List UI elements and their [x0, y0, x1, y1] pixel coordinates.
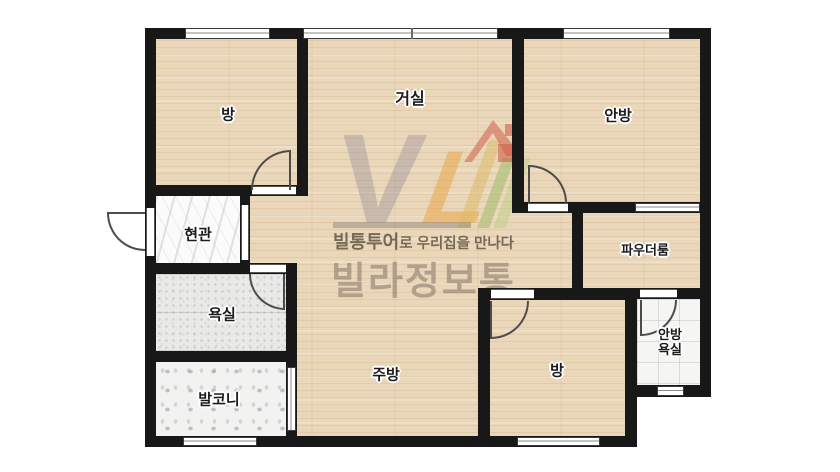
window-masterbedroom-powder [635, 203, 700, 212]
room-label-master-bathroom: 안방 욕실 [658, 328, 682, 358]
room-label-bedroom2: 방 [550, 362, 564, 379]
room-label-master-bathroom-line2: 욕실 [658, 342, 682, 357]
bedroom1-door-leaf [289, 150, 291, 190]
entrance-passage-opening [241, 205, 249, 260]
front-door-leaf [107, 212, 145, 214]
bathroom-door-opening [250, 264, 286, 273]
window-balcony-kitchen [287, 367, 296, 431]
front-door-arc [107, 213, 145, 251]
wall-living-masterbedroom [512, 28, 524, 213]
room-label-living: 거실 [395, 91, 424, 109]
window-top-masterbedroom [563, 28, 670, 39]
room-label-bedroom1: 방 [221, 106, 235, 123]
room-label-entrance: 현관 [184, 226, 212, 243]
window-top-living [303, 28, 498, 39]
window-top-bedroom1 [185, 28, 270, 39]
room-label-master-bathroom-line1: 안방 [658, 327, 682, 342]
wall-balcony-top [145, 351, 297, 362]
bathroom-door-leaf [283, 274, 285, 310]
room-label-kitchen: 주방 [372, 366, 400, 383]
window-bottom-balcony [183, 437, 257, 446]
wall-bathroom-right [286, 263, 297, 362]
wall-powderroom-left [572, 202, 583, 299]
window-bottom-bedroom2 [517, 437, 600, 446]
wall-bedroom2-left [478, 288, 490, 447]
wall-bedroom2-right [625, 288, 637, 447]
masterbathroom-door-leaf [640, 300, 642, 336]
bedroom2-door-leaf [490, 301, 492, 339]
room-label-master-bedroom: 안방 [604, 107, 632, 124]
room-label-powder-room: 파우더룸 [621, 244, 669, 259]
front-door-opening [146, 208, 155, 256]
masterbedroom-door-opening [528, 203, 568, 212]
masterbathroom-door-opening [640, 289, 677, 298]
masterbedroom-door-leaf [528, 165, 530, 203]
outside-notch [637, 397, 711, 447]
window-masterbathroom [657, 386, 684, 396]
window-divider [411, 28, 413, 39]
room-label-bathroom: 욕실 [208, 306, 236, 323]
bedroom2-door-opening [491, 289, 534, 299]
floor-plan: V L 빌통투어로 우리집을 만나다 빌라정보통 [0, 0, 840, 472]
room-label-balcony: 발코니 [198, 391, 239, 408]
wall-bedroom1-right [297, 28, 308, 196]
